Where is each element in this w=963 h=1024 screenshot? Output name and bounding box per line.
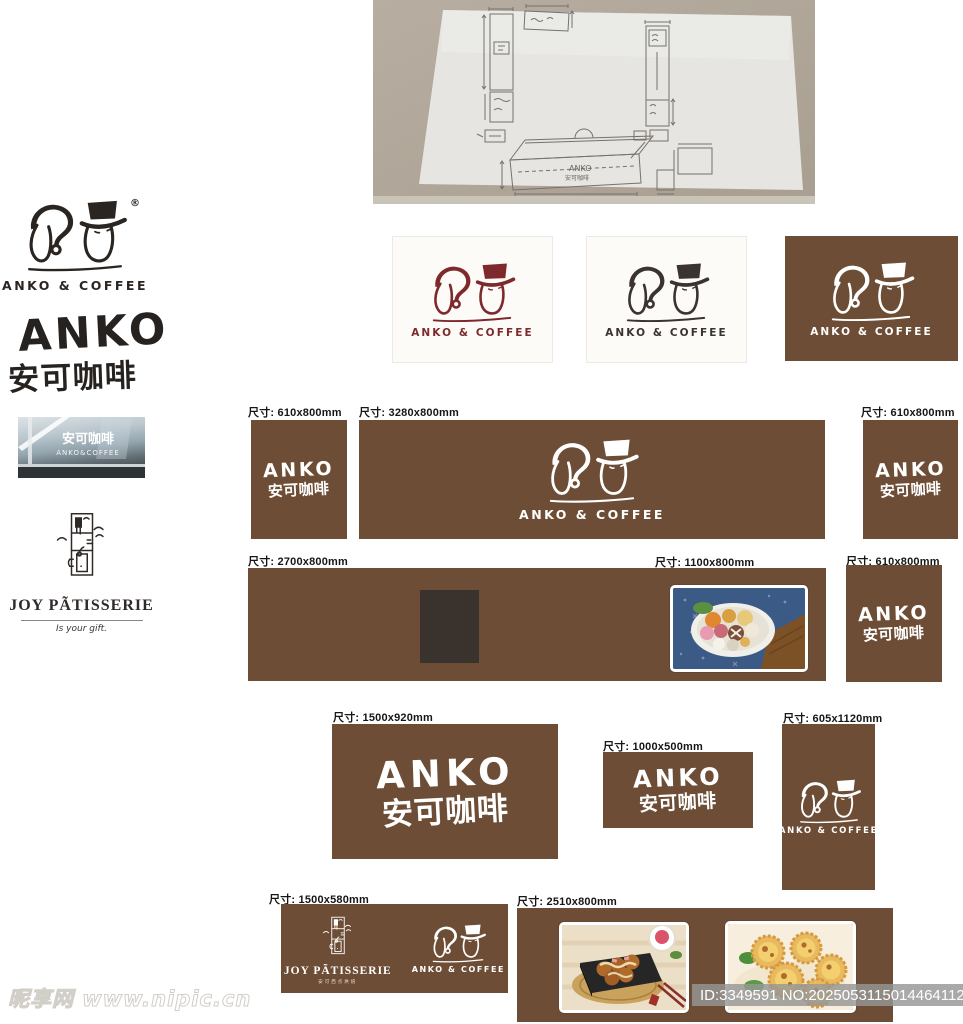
sketch-photo: ANKO 安可咖啡 <box>373 0 815 204</box>
size-label: 尺寸: 2700x800mm <box>248 553 348 569</box>
sign-panel-2700x800 <box>248 568 826 681</box>
sign-wordmark-cn: 安可咖啡 <box>268 481 330 500</box>
brand-logo-text: ANKO & COFFEE <box>2 278 148 293</box>
brand-logo-text: ANKO & COFFEE <box>519 507 665 522</box>
anko-faces-icon <box>617 261 715 326</box>
sign-wordmark-en: ANKO <box>858 603 930 625</box>
registered-trademark-icon: ® <box>130 198 140 209</box>
anko-faces-icon <box>822 260 920 325</box>
food-photo-takoyaki <box>559 922 689 1013</box>
sign-wordmark-en: ANKO <box>263 459 335 481</box>
anko-faces-icon <box>423 261 521 326</box>
logo-variant-maroon: ANKO & COFFEE <box>392 236 553 363</box>
joy-tagline: Is your gift. <box>56 624 107 634</box>
sign-panel-1500x580: JOY PÃTISSERIE 安可西点烘焙 ANKO & COFFEE <box>281 904 508 993</box>
sign-panel-3280x800: ANKO & COFFEE <box>359 420 825 539</box>
main-brand-logo: ANKO & COFFEE ® <box>8 198 142 293</box>
sign-panel-610x800-right: ANKO 安可咖啡 <box>863 420 958 539</box>
brand-logo-text: ANKO & COFFEE <box>411 327 534 339</box>
sign-wordmark-en: ANKO <box>875 459 947 481</box>
joy-art-icon <box>54 505 110 589</box>
sign-wordmark-cn: 安可咖啡 <box>863 625 925 644</box>
sign-panel-610x800-row2: ANKO 安可咖啡 <box>846 565 942 682</box>
sign-wordmark-en: ANKO <box>633 765 724 793</box>
size-label: 尺寸: 2510x800mm <box>517 893 617 909</box>
sketch-box-label-cn: 安可咖啡 <box>565 174 589 182</box>
sign-wordmark-cn: 安可咖啡 <box>639 792 717 816</box>
joy-art-icon <box>321 912 355 962</box>
image-id-bar: ID:3349591 NO:20250531150144641121 <box>692 984 963 1006</box>
logo-variant-dark: ANKO & COFFEE <box>586 236 747 363</box>
joy-patisserie-logo: JOY PÃTISSERIE Is your gift. <box>0 505 163 634</box>
sign-panel-1500x920: ANKO 安可咖啡 <box>332 724 558 859</box>
joy-name: JOY PÃTISSERIE <box>9 597 154 615</box>
storefront-sign-cn: 安可咖啡 <box>62 431 114 447</box>
sign-panel-605x1120: ANKO & COFFEE <box>782 724 875 890</box>
brand-logo-text: ANKO & COFFEE <box>605 327 728 339</box>
door-cutout <box>420 590 479 663</box>
joy-subtext: 安可西点烘焙 <box>318 979 357 985</box>
size-label: 尺寸: 610x800mm <box>248 404 342 420</box>
anko-faces-icon <box>539 437 645 507</box>
brand-logo-text: ANKO & COFFEE <box>779 826 878 836</box>
size-label: 尺寸: 610x800mm <box>861 404 955 420</box>
anko-faces-icon <box>426 923 490 965</box>
brand-logo-text: ANKO & COFFEE <box>412 965 505 974</box>
design-sheet: ANKO 安可咖啡 ANKO & COFFEE ® ANKO 安可咖啡 安可咖啡… <box>0 0 963 1024</box>
sign-wordmark-cn: 安可咖啡 <box>880 481 942 500</box>
size-label: 尺寸: 3280x800mm <box>359 404 459 420</box>
anko-logo-white: ANKO & COFFEE <box>412 923 505 974</box>
brand-wordmark-cn: 安可咖啡 <box>7 350 137 399</box>
anko-faces-icon <box>16 198 134 276</box>
joy-name: JOY PÃTISSERIE <box>284 965 392 977</box>
food-photo-oden <box>670 585 808 672</box>
site-watermark: 昵享网 www.nipic.cn <box>8 983 251 1013</box>
joy-divider <box>21 620 143 621</box>
storefront-photo: 安可咖啡 ANKO&COFFEE <box>18 417 145 478</box>
anko-faces-icon <box>793 778 865 826</box>
storefront-sign-en: ANKO&COFFEE <box>56 449 120 457</box>
size-label: 尺寸: 1500x920mm <box>333 709 433 725</box>
brand-logo-text: ANKO & COFFEE <box>810 326 933 338</box>
logo-variant-white-on-brown: ANKO & COFFEE <box>785 236 958 361</box>
sign-wordmark-cn: 安可咖啡 <box>381 792 509 831</box>
sign-panel-610x800-left: ANKO 安可咖啡 <box>251 420 347 539</box>
joy-logo-white: JOY PÃTISSERIE 安可西点烘焙 <box>284 912 392 985</box>
sign-panel-1000x500: ANKO 安可咖啡 <box>603 752 753 828</box>
sketch-box-label-en: ANKO <box>569 164 592 173</box>
sign-wordmark-en: ANKO <box>375 752 515 796</box>
